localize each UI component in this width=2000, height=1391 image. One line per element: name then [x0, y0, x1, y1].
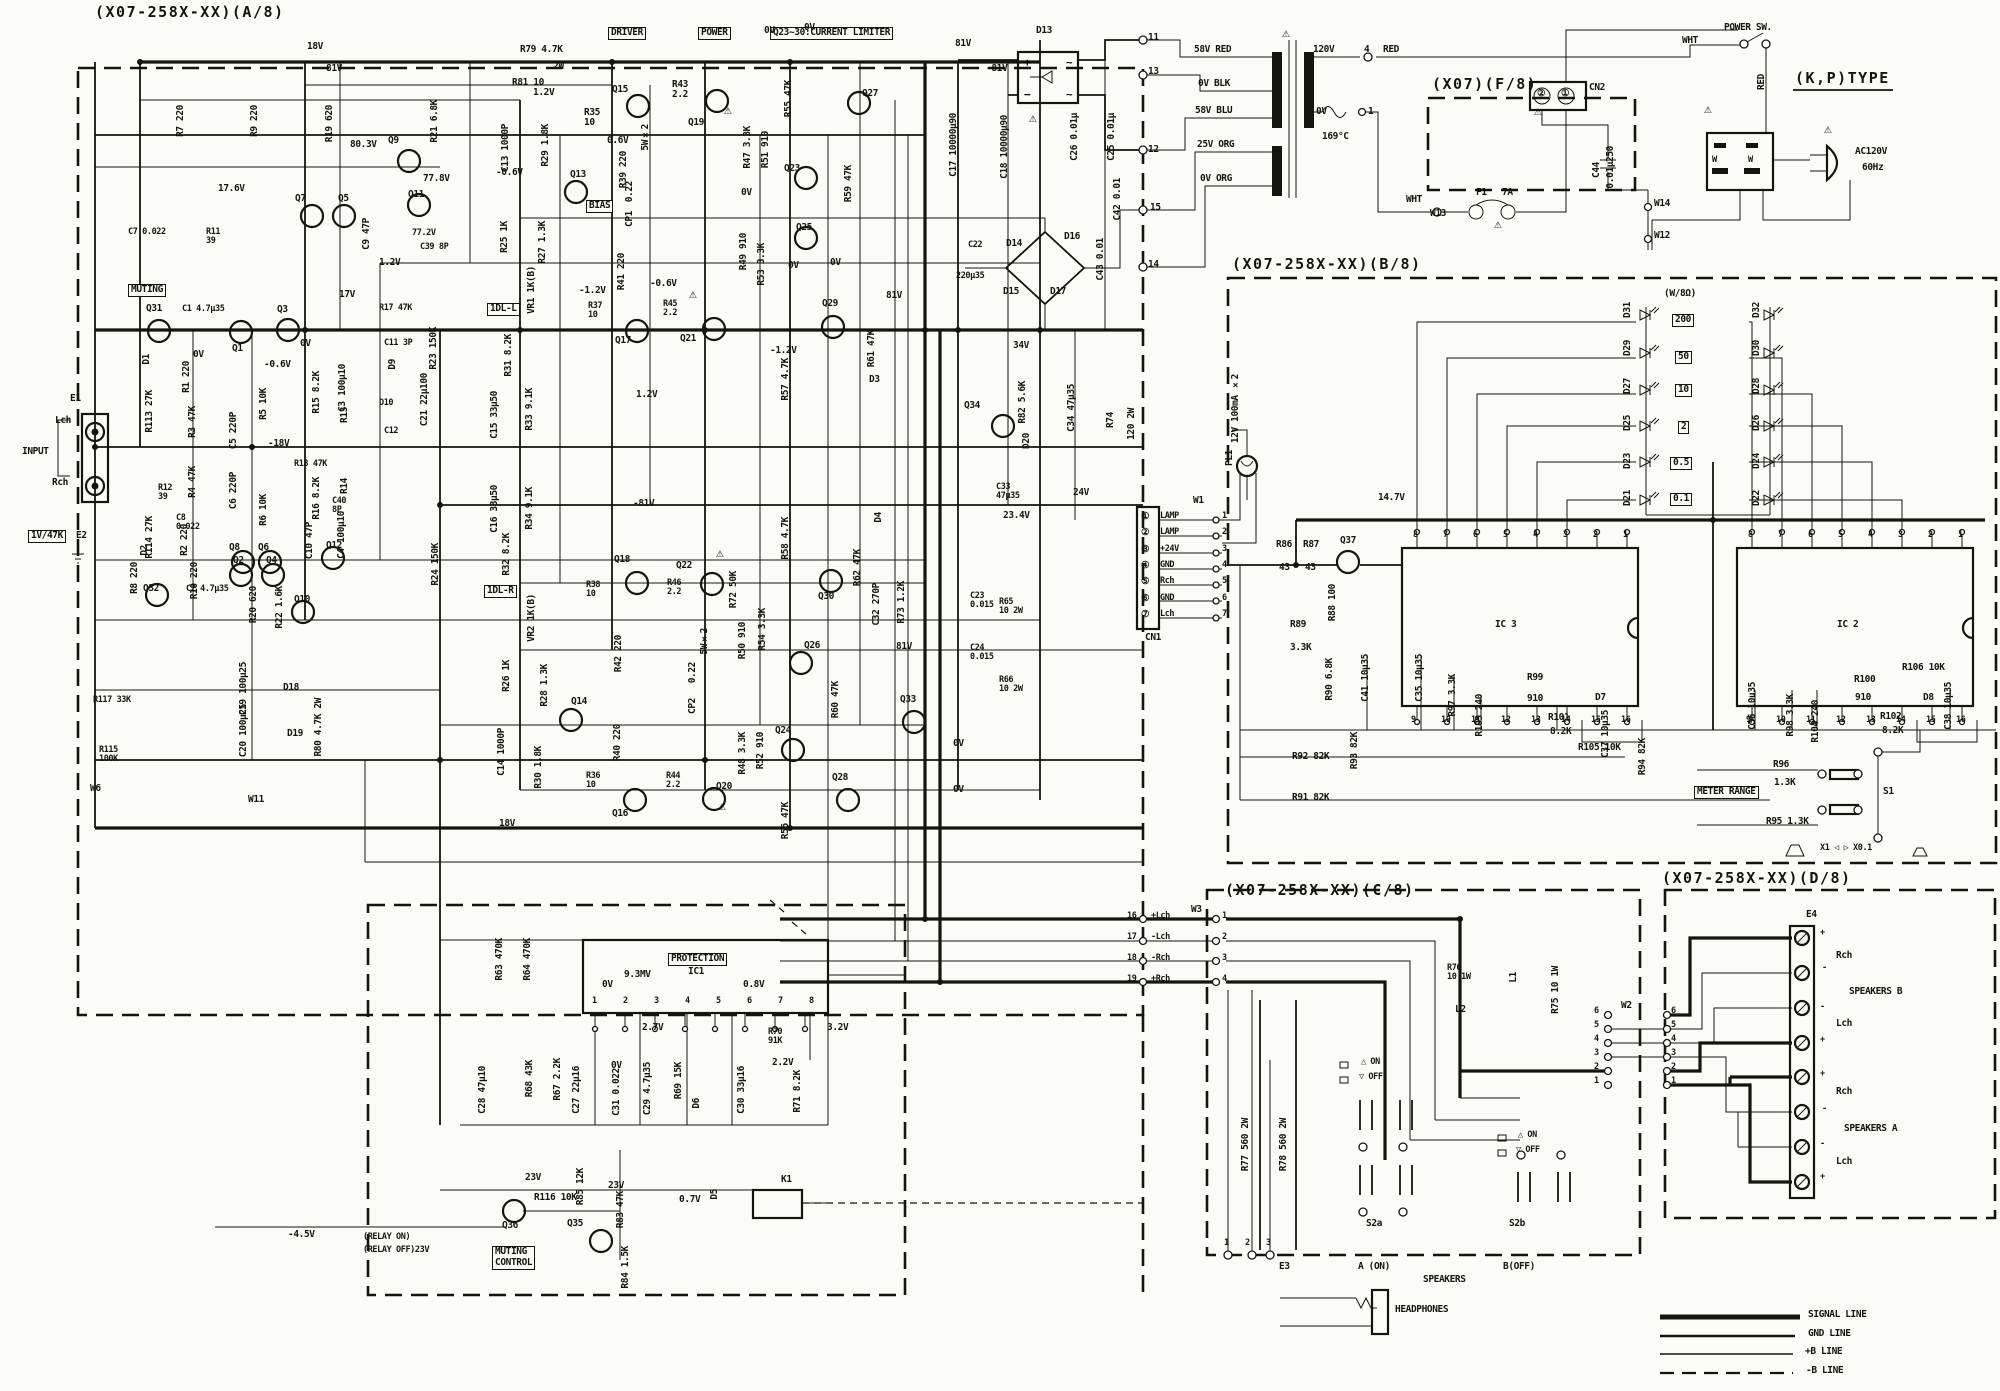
schematic-label: R90 6.8K: [1325, 658, 1335, 701]
schematic-label: C5 220P: [229, 412, 239, 449]
schematic-label: R115 100K: [99, 746, 118, 764]
schematic-label: 1: [1958, 531, 1963, 540]
schematic-label: F1: [1476, 188, 1487, 198]
schematic-label: Q14: [571, 697, 587, 707]
schematic-label: (K,P)TYPE: [1795, 70, 1890, 86]
schematic-label: R114 27K: [145, 516, 155, 559]
schematic-label: R82 5.6K: [1018, 381, 1028, 424]
schematic-label: W: [1748, 156, 1753, 165]
schematic-label: R9 220: [250, 105, 260, 137]
schematic-label: R92 82K: [1292, 752, 1329, 762]
schematic-label: PL1: [1225, 450, 1235, 466]
schematic-label: C21 22µ100: [420, 373, 430, 426]
schematic-label: D26: [1752, 415, 1762, 431]
schematic-label: (X07-258X-XX)(B/8): [1232, 256, 1422, 272]
schematic-label: 6: [1222, 594, 1227, 603]
schematic-label: S2b: [1509, 1219, 1525, 1229]
schematic-label: Q2: [233, 556, 244, 566]
schematic-label: 0.7V: [679, 1195, 700, 1205]
schematic-label: 5: [1671, 1021, 1676, 1030]
schematic-label: R31 8.2K: [504, 334, 514, 377]
schematic-label: Q33: [900, 695, 916, 705]
schematic-label: BIAS: [586, 200, 613, 213]
schematic-label: D32: [1752, 302, 1762, 318]
schematic-label: R62 47K: [853, 549, 863, 586]
schematic-label: R32 8.2K: [502, 533, 512, 576]
schematic-label: C33 47µ35: [996, 483, 1020, 501]
schematic-label: 1: [1671, 1077, 1676, 1086]
schematic-label: R24 150K: [431, 543, 441, 586]
schematic-label: 3: [1671, 1049, 1676, 1058]
schematic-label: Q7: [295, 194, 306, 204]
schematic-label: C43 0.01: [1096, 238, 1106, 281]
schematic-label: Q20: [716, 782, 732, 792]
schematic-label: C15 33µ50: [490, 391, 500, 439]
schematic-label: 0V: [953, 739, 964, 749]
schematic-label: 14.7V: [1378, 493, 1405, 503]
schematic-label: R74: [1106, 412, 1116, 428]
schematic-label: DRIVER: [608, 27, 646, 40]
schematic-label: R34 9.1K: [525, 487, 535, 530]
schematic-label: 0.8V: [743, 980, 764, 990]
schematic-label: △ ON: [1361, 1058, 1380, 1067]
schematic-label: +24V: [1160, 545, 1179, 554]
schematic-label: R27 1.3K: [538, 221, 548, 264]
schematic-label: Rch: [52, 478, 68, 488]
schematic-label: 3: [1266, 1239, 1271, 1248]
schematic-label: 81V: [326, 64, 342, 74]
schematic-label: +: [1820, 1036, 1825, 1045]
schematic-label: R20 620: [249, 586, 259, 623]
schematic-label: R49 910: [739, 233, 749, 270]
schematic-label: Q24: [775, 726, 791, 736]
schematic-label: GND LINE: [1808, 1329, 1851, 1339]
schematic-label: Lch: [1836, 1019, 1852, 1029]
schematic-label: R41 220: [617, 253, 627, 290]
schematic-label: R45 2.2: [663, 300, 677, 318]
schematic-label: R44 2.2: [666, 772, 680, 790]
schematic-label: R21 6.8K: [430, 100, 440, 143]
schematic-label: 2: [1678, 421, 1689, 434]
schematic-label: 3.2V: [827, 1023, 848, 1033]
schematic-label: 0V ORG: [1200, 174, 1232, 184]
schematic-label: Q17: [615, 336, 631, 346]
schematic-label: Q4: [266, 556, 277, 566]
schematic-label: R113 27K: [145, 390, 155, 433]
schematic-label: C28 47µ10: [478, 1066, 488, 1114]
schematic-label: 12: [1501, 716, 1510, 725]
schematic-label: (RELAY ON): [363, 1233, 410, 1242]
schematic-label: 7: [778, 997, 783, 1006]
schematic-label: R4 47K: [188, 466, 198, 498]
schematic-label: ⚠: [689, 288, 696, 302]
schematic-label: R46 2.2: [667, 579, 681, 597]
schematic-label: 3: [1222, 545, 1227, 554]
schematic-label: VR1 1K(B): [527, 266, 537, 314]
schematic-label: C11 3P: [384, 339, 412, 348]
schematic-label: 10: [1441, 716, 1450, 725]
schematic-label: 17.6V: [218, 184, 245, 194]
schematic-label: C17 10000µ90: [949, 113, 959, 177]
schematic-label: 7A: [1502, 188, 1513, 198]
schematic-label: 3: [654, 997, 659, 1006]
schematic-label: 34V: [1013, 341, 1029, 351]
schematic-label: D4: [874, 512, 884, 523]
schematic-label: +Lch: [1151, 912, 1170, 921]
schematic-label: 81V: [896, 642, 912, 652]
schematic-label: L2: [1455, 1005, 1466, 1015]
schematic-label: E1: [70, 394, 81, 404]
schematic-label: -81V: [633, 499, 654, 509]
schematic-label: R17 47K: [379, 304, 412, 313]
schematic-label: 23.4V: [1003, 511, 1030, 521]
schematic-label: E3: [1279, 1262, 1290, 1272]
schematic-label: +B LINE: [1805, 1347, 1842, 1357]
schematic-label: R99: [1527, 673, 1543, 683]
schematic-label: R42 220: [614, 635, 624, 672]
schematic-label: 0V: [830, 258, 841, 268]
schematic-label: R89: [1290, 620, 1306, 630]
schematic-label: Q6: [258, 543, 269, 553]
schematic-label: 17V: [339, 290, 355, 300]
schematic-label: Rch: [1160, 577, 1174, 586]
schematic-label: MUTING CONTROL: [492, 1246, 535, 1270]
schematic-label: 1: [592, 997, 597, 1006]
schematic-label: R68 43K: [525, 1060, 535, 1097]
schematic-label: 2.7V: [642, 1023, 663, 1033]
schematic-label: 1: [1222, 512, 1227, 521]
schematic-label: R70 91K: [768, 1028, 782, 1046]
schematic-label: D19: [287, 729, 303, 739]
schematic-label: -4.5V: [288, 1230, 315, 1240]
schematic-label: POWER: [698, 27, 731, 40]
schematic-label: 1: [1623, 531, 1628, 540]
schematic-label: 4: [1594, 1035, 1599, 1044]
schematic-label: Q25: [796, 223, 812, 233]
schematic-label: 15: [1150, 203, 1161, 213]
schematic-label: R55 47K: [784, 80, 794, 117]
schematic-label: W11: [248, 795, 264, 805]
schematic-label: R106 10K: [1902, 663, 1945, 673]
schematic-label: C29 4.7µ35: [643, 1062, 653, 1115]
schematic-label: 43: [1279, 563, 1290, 573]
schematic-label: 1V/47K: [28, 530, 66, 543]
schematic-label: 25V ORG: [1197, 140, 1234, 150]
schematic-page: + ~ − ~: [0, 0, 2000, 1391]
schematic-label: R7 220: [176, 105, 186, 137]
schematic-label: R67 2.2K: [553, 1058, 563, 1101]
schematic-label: R15 8.2K: [312, 371, 322, 414]
schematic-label: 7: [1443, 531, 1448, 540]
schematic-label: R66 10 2W: [999, 676, 1023, 694]
schematic-label: 2: [1928, 531, 1933, 540]
schematic-label: Q13: [570, 170, 586, 180]
schematic-label: C42 0.01: [1113, 178, 1123, 221]
schematic-label: 2: [623, 997, 628, 1006]
schematic-label: 12V 100mA ×2: [1231, 374, 1241, 443]
schematic-label: D6: [692, 1098, 702, 1109]
schematic-label: 120 2W: [1127, 408, 1137, 440]
schematic-label: Q15: [612, 85, 628, 95]
schematic-label: R48 3.3K: [738, 732, 748, 775]
schematic-label: R53 3.3K: [757, 243, 767, 286]
schematic-label: 6: [1473, 531, 1478, 540]
schematic-label: 6: [1808, 531, 1813, 540]
schematic-label: Q23~30:CURRENT LIMITER: [770, 27, 893, 40]
schematic-label: ①: [1561, 89, 1569, 99]
schematic-label: 5: [1503, 531, 1508, 540]
schematic-label: Q29: [822, 299, 838, 309]
schematic-label: 8: [1748, 531, 1753, 540]
schematic-label: -81V: [986, 64, 1007, 74]
schematic-label: 50: [1675, 351, 1692, 364]
schematic-label: 0V: [193, 350, 204, 360]
schematic-label: 1: [1222, 912, 1227, 921]
schematic-label: 5W×2: [700, 628, 710, 655]
schematic-label: C41 10µ35: [1361, 654, 1371, 702]
schematic-label: ⑦: [1141, 610, 1149, 620]
schematic-label: R22 1.6K: [275, 586, 285, 629]
schematic-label: 5: [1222, 577, 1227, 586]
schematic-label: 5W×2: [641, 124, 651, 151]
schematic-label: 12: [1148, 145, 1159, 155]
schematic-label: 4: [1222, 975, 1227, 984]
schematic-label: 0V: [953, 785, 964, 795]
schematic-label: 58V RED: [1194, 45, 1231, 55]
schematic-label: -18V: [268, 439, 289, 449]
schematic-label: R96: [1773, 760, 1789, 770]
schematic-label: 58V BLU: [1195, 106, 1232, 116]
schematic-label: AC120V: [1855, 147, 1887, 157]
schematic-label: PROTECTION: [668, 953, 727, 966]
schematic-label: R73 1.2K: [897, 581, 907, 624]
schematic-label: -Lch: [1151, 933, 1170, 942]
schematic-label: D28: [1752, 378, 1762, 394]
schematic-label: +Rch: [1151, 975, 1170, 984]
schematic-label: 11: [1806, 716, 1815, 725]
schematic-label: +: [1820, 1070, 1825, 1079]
schematic-label: 16: [1621, 716, 1630, 725]
schematic-label: D21: [1623, 490, 1633, 506]
schematic-label: R56 47K: [781, 802, 791, 839]
schematic-label: WHT: [1406, 195, 1422, 205]
schematic-label: C38 10µ35: [1944, 682, 1954, 730]
schematic-label: D17: [1050, 287, 1066, 297]
schematic-label: 0V BLK: [1198, 79, 1230, 89]
schematic-label: SIGNAL LINE: [1808, 1310, 1867, 1320]
schematic-label: R14: [340, 478, 350, 494]
schematic-label: CP2: [688, 698, 698, 714]
schematic-label: Lch: [1836, 1157, 1852, 1167]
schematic-label: 0.5: [1670, 457, 1692, 470]
schematic-label: Q36: [502, 1221, 518, 1231]
schematic-label: C13 1000P: [501, 124, 511, 172]
schematic-label: Q32: [143, 584, 159, 594]
schematic-label: 8.2K: [1550, 727, 1571, 737]
schematic-label: Q10: [294, 595, 310, 605]
schematic-labels: (X07-258X-XX)(A/8)(X07-258X-XX)(B/8)(X07…: [0, 0, 2000, 1391]
schematic-label: 12: [1836, 716, 1845, 725]
schematic-label: S1: [1883, 787, 1894, 797]
schematic-label: WHT: [1682, 36, 1698, 46]
schematic-label: C40 8P: [332, 497, 346, 515]
schematic-label: (X07-258X-XX)(A/8): [95, 4, 285, 20]
schematic-label: 1: [1224, 1239, 1229, 1248]
schematic-label: R69 15K: [674, 1062, 684, 1099]
schematic-label: R57 4.7K: [781, 358, 791, 401]
schematic-label: 120V: [1313, 45, 1334, 55]
schematic-label: C1 4.7µ35: [182, 305, 224, 314]
schematic-label: ①: [1141, 512, 1149, 522]
schematic-label: R72 50K: [729, 571, 739, 608]
schematic-label: 1.2V: [533, 88, 554, 98]
schematic-label: R30 1.8K: [534, 746, 544, 789]
schematic-label: (X07-258X-XX)(D/8): [1662, 870, 1852, 886]
schematic-label: R59 47K: [844, 165, 854, 202]
schematic-label: R54 3.3K: [758, 608, 768, 651]
schematic-label: D20: [1022, 433, 1032, 449]
schematic-label: 10: [1675, 384, 1692, 397]
schematic-label: R116 10K: [534, 1193, 577, 1203]
schematic-label: (X07)(F/8): [1432, 76, 1537, 92]
schematic-label: Q23: [784, 164, 800, 174]
schematic-label: LAMP: [1160, 528, 1179, 537]
schematic-label: 0.1: [1670, 493, 1692, 506]
schematic-label: K1: [781, 1175, 792, 1185]
schematic-label: 7: [1778, 531, 1783, 540]
schematic-label: 5: [1838, 531, 1843, 540]
schematic-label: ③: [1141, 545, 1149, 555]
schematic-label: R88 100: [1328, 584, 1338, 621]
schematic-label: C26 0.01µ: [1070, 113, 1080, 161]
schematic-label: -1.2V: [579, 286, 606, 296]
schematic-label: ⚠: [724, 104, 731, 118]
schematic-label: 14: [1561, 716, 1570, 725]
schematic-label: C27 22µ16: [572, 1066, 582, 1114]
schematic-label: 1.2V: [379, 258, 400, 268]
schematic-label: 0V: [788, 261, 799, 271]
schematic-label: C35 10µ35: [1415, 654, 1425, 702]
schematic-label: D10: [379, 399, 393, 408]
schematic-label: 4: [1671, 1035, 1676, 1044]
schematic-label: C7 0.022: [128, 228, 166, 237]
schematic-label: R23 150K: [429, 327, 439, 370]
schematic-label: 4: [1868, 531, 1873, 540]
schematic-label: C18 10000µ90: [1000, 115, 1010, 179]
schematic-label: 60Hz: [1862, 163, 1883, 173]
schematic-label: Rch: [1836, 951, 1852, 961]
schematic-label: R26 1K: [502, 660, 512, 692]
schematic-label: R38 10: [586, 581, 600, 599]
schematic-label: Q30: [818, 592, 834, 602]
schematic-label: D3: [869, 375, 880, 385]
schematic-label: C9 47P: [362, 218, 372, 250]
schematic-label: R93 82K: [1350, 732, 1360, 769]
schematic-label: Lch: [1160, 610, 1174, 619]
schematic-label: 0V: [602, 980, 613, 990]
schematic-label: R28 1.3K: [540, 664, 550, 707]
schematic-label: 11: [1471, 716, 1480, 725]
schematic-label: C8 0.022: [176, 514, 200, 532]
schematic-label: 169°C: [1322, 132, 1349, 142]
schematic-label: 0.22: [625, 181, 635, 202]
schematic-label: 77.2V: [412, 229, 436, 238]
schematic-label: -Rch: [1151, 954, 1170, 963]
schematic-label: 3: [1222, 954, 1227, 963]
schematic-label: R25 1K: [500, 221, 510, 253]
schematic-label: 23V: [525, 1173, 541, 1183]
schematic-label: R50 910: [738, 622, 748, 659]
schematic-label: R85 12K: [576, 1168, 586, 1205]
schematic-label: 2W: [553, 62, 564, 72]
schematic-label: 1DL-L: [487, 303, 520, 316]
schematic-label: 4: [685, 997, 690, 1006]
schematic-label: Q19: [688, 118, 704, 128]
schematic-label: 15: [1591, 716, 1600, 725]
schematic-label: R40 220: [613, 724, 623, 761]
schematic-label: Rch: [1836, 1087, 1852, 1097]
schematic-label: D7: [1595, 693, 1606, 703]
schematic-label: -1.2V: [770, 346, 797, 356]
schematic-label: D23: [1623, 453, 1633, 469]
schematic-label: R6 10K: [259, 494, 269, 526]
schematic-label: D5: [710, 1189, 720, 1200]
schematic-label: R79 4.7K: [520, 45, 563, 55]
schematic-label: ⑤: [1141, 577, 1149, 587]
schematic-label: ⚠: [718, 800, 725, 814]
schematic-label: R86: [1276, 540, 1292, 550]
schematic-label: R98 3.3K: [1786, 694, 1796, 737]
schematic-label: ④: [1141, 561, 1149, 571]
schematic-label: C14 1000P: [497, 728, 507, 776]
schematic-label: R1 220: [182, 361, 192, 393]
schematic-label: W6: [90, 784, 101, 794]
schematic-label: D29: [1623, 340, 1633, 356]
schematic-label: Q26: [804, 641, 820, 651]
schematic-label: 2: [1593, 531, 1598, 540]
schematic-label: C31 0.022: [612, 1068, 622, 1116]
schematic-label: 3: [1898, 531, 1903, 540]
schematic-label: ⚠: [1704, 103, 1711, 117]
schematic-label: 0V: [804, 23, 815, 33]
schematic-label: C34 47µ35: [1067, 384, 1077, 432]
schematic-label: Q28: [832, 773, 848, 783]
schematic-label: 4: [1533, 531, 1538, 540]
schematic-label: R33 9.1K: [525, 388, 535, 431]
schematic-label: R36 10: [586, 772, 600, 790]
schematic-label: C12: [384, 427, 398, 436]
schematic-label: 16: [1956, 716, 1965, 725]
schematic-label: W: [1712, 156, 1717, 165]
schematic-label: Q18: [614, 555, 630, 565]
schematic-label: 6: [1594, 1007, 1599, 1016]
schematic-label: A (ON): [1358, 1262, 1390, 1272]
schematic-label: R10 220: [190, 562, 200, 599]
schematic-label: R29 1.8K: [541, 124, 551, 167]
schematic-label: Q27: [862, 89, 878, 99]
schematic-label: W12: [1654, 231, 1670, 241]
schematic-label: R84 1.5K: [621, 1246, 631, 1289]
schematic-label: E2: [76, 531, 87, 541]
schematic-label: R65 10 2W: [999, 598, 1023, 616]
schematic-label: C22: [968, 241, 982, 250]
schematic-label: 7: [1222, 610, 1227, 619]
schematic-label: C16 33µ50: [490, 485, 500, 533]
schematic-label: IC 3: [1495, 620, 1516, 630]
schematic-label: CN2: [1589, 83, 1605, 93]
schematic-label: D27: [1623, 378, 1633, 394]
schematic-label: 77.8V: [423, 174, 450, 184]
